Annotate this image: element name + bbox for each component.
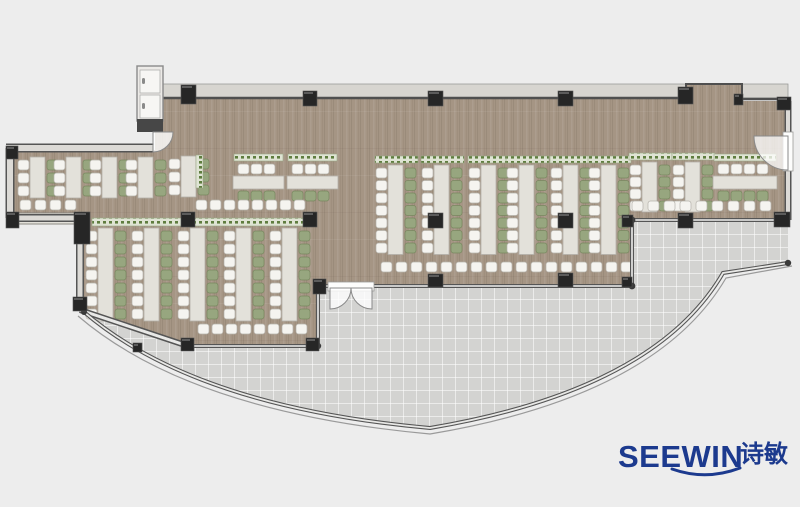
chair-green — [536, 168, 547, 178]
chair-white — [54, 173, 65, 183]
column-highlight — [182, 213, 191, 215]
column-highlight — [7, 147, 14, 149]
chair-green — [161, 283, 172, 293]
chair-white — [282, 324, 293, 334]
column-highlight — [623, 278, 628, 280]
chair-green — [451, 168, 462, 178]
chair-white — [469, 193, 480, 203]
chair-white — [212, 324, 223, 334]
chair-white — [54, 186, 65, 196]
chair-green — [618, 181, 629, 191]
chair-white — [589, 243, 600, 253]
chair-green — [299, 257, 310, 267]
chair-white — [132, 231, 143, 241]
chair-green — [207, 257, 218, 267]
chair-white — [376, 231, 387, 241]
chair-white — [728, 201, 739, 211]
chair-white — [305, 164, 316, 174]
chair-white — [178, 257, 189, 267]
desk-run — [421, 156, 464, 255]
chair-green — [618, 206, 629, 216]
planter-strip — [588, 156, 631, 163]
chair-white — [196, 200, 207, 210]
chair-white — [270, 231, 281, 241]
chair-white — [546, 262, 557, 272]
chair-white — [760, 201, 771, 211]
chair-white — [376, 243, 387, 253]
chair-white — [270, 309, 281, 319]
chair-green — [115, 231, 126, 241]
chair-white — [469, 206, 480, 216]
column-highlight — [559, 92, 569, 94]
seewin-logo: SEEWIN 诗敏 — [618, 441, 788, 481]
chair-white — [501, 262, 512, 272]
chair-white — [551, 243, 562, 253]
desk-strip — [481, 165, 496, 255]
chair-white — [50, 200, 61, 210]
chair-white — [576, 262, 587, 272]
chair-green — [292, 191, 303, 201]
chair-green — [253, 296, 264, 306]
chair-white — [224, 257, 235, 267]
chair-green — [618, 231, 629, 241]
chair-white — [86, 283, 97, 293]
chair-green — [253, 231, 264, 241]
chair-white — [132, 283, 143, 293]
column-highlight — [134, 344, 138, 346]
chair-green — [757, 191, 768, 201]
column-highlight — [314, 280, 322, 282]
chair-white — [469, 181, 480, 191]
chair-white — [18, 160, 29, 170]
chair-white — [469, 168, 480, 178]
chair-green — [659, 189, 670, 199]
chair-white — [673, 165, 684, 175]
chair-green — [536, 181, 547, 191]
column-highlight — [775, 213, 786, 215]
desk-strip — [388, 165, 403, 255]
structural-column — [74, 212, 90, 244]
chair-white — [507, 206, 518, 216]
chair-white — [126, 186, 137, 196]
chair-white — [606, 262, 617, 272]
desk-strip — [66, 157, 81, 198]
chair-white — [178, 231, 189, 241]
chair-white — [376, 218, 387, 228]
chair-row — [632, 201, 771, 211]
column-highlight — [429, 92, 439, 94]
chair-white — [65, 200, 76, 210]
planter-strip — [288, 154, 337, 161]
chair-white — [224, 270, 235, 280]
chair-white — [90, 173, 101, 183]
desk-strip — [30, 157, 45, 198]
chair-white — [376, 193, 387, 203]
chair-white — [469, 243, 480, 253]
logo-chinese-text: 诗敏 — [740, 443, 788, 467]
chair-white — [178, 296, 189, 306]
chair-green — [299, 244, 310, 254]
desk-run — [550, 156, 593, 255]
chair-white — [238, 200, 249, 210]
column-highlight — [735, 95, 739, 97]
chair-white — [680, 201, 691, 211]
chair-white — [35, 200, 46, 210]
chair-green — [253, 257, 264, 267]
chair-white — [226, 324, 237, 334]
chair-green — [451, 218, 462, 228]
chair-white — [507, 181, 518, 191]
chair-green — [207, 244, 218, 254]
chair-green — [451, 193, 462, 203]
chair-green — [405, 168, 416, 178]
chair-green — [702, 189, 713, 199]
chair-white — [224, 296, 235, 306]
chair-green — [299, 270, 310, 280]
chair-green — [744, 191, 755, 201]
desk-strip — [98, 228, 113, 321]
chair-green — [253, 283, 264, 293]
chair-white — [86, 270, 97, 280]
chair-green — [702, 177, 713, 187]
chair-white — [270, 257, 281, 267]
chair-green — [405, 181, 416, 191]
planter-strip — [375, 156, 418, 163]
chair-white — [294, 200, 305, 210]
chair-white — [664, 201, 675, 211]
chair-white — [507, 243, 518, 253]
chair-white — [254, 324, 265, 334]
chair-green — [536, 218, 547, 228]
column-highlight — [778, 98, 787, 100]
desk-strip — [138, 157, 153, 198]
planter-strip — [196, 155, 203, 188]
core-dark-band — [137, 119, 163, 132]
chair-white — [270, 283, 281, 293]
column-highlight — [429, 214, 439, 216]
chair-white — [471, 262, 482, 272]
chair-green — [155, 160, 166, 170]
chair-white — [744, 164, 755, 174]
chair-white — [757, 164, 768, 174]
chair-green — [155, 173, 166, 183]
service-core — [137, 66, 163, 132]
chair-green — [161, 257, 172, 267]
chair-white — [132, 244, 143, 254]
chair-green — [451, 243, 462, 253]
planter-strip — [234, 154, 283, 161]
chair-green — [115, 270, 126, 280]
chair-white — [422, 231, 433, 241]
chair-white — [238, 164, 249, 174]
chair-white — [531, 262, 542, 272]
chair-white — [169, 159, 180, 169]
chair-white — [318, 164, 329, 174]
chair-white — [376, 206, 387, 216]
chair-green — [618, 243, 629, 253]
chair-white — [132, 257, 143, 267]
chair-white — [126, 173, 137, 183]
chair-white — [132, 296, 143, 306]
desk-strip — [236, 228, 251, 321]
chair-green — [731, 191, 742, 201]
chair-white — [86, 244, 97, 254]
chair-white — [296, 324, 307, 334]
desk-strip — [233, 176, 284, 189]
chair-white — [132, 309, 143, 319]
column-highlight — [559, 274, 569, 276]
chair-white — [224, 309, 235, 319]
chair-white — [589, 181, 600, 191]
chair-white — [516, 262, 527, 272]
chair-green — [536, 231, 547, 241]
chair-white — [178, 244, 189, 254]
chair-green — [536, 206, 547, 216]
chair-white — [86, 257, 97, 267]
chair-green — [451, 181, 462, 191]
desk-run — [90, 157, 130, 198]
chair-green — [253, 244, 264, 254]
column-highlight — [304, 92, 313, 94]
chair-white — [696, 201, 707, 211]
chair-white — [648, 201, 659, 211]
chair-white — [178, 283, 189, 293]
chair-row — [381, 262, 632, 272]
chair-white — [551, 231, 562, 241]
chair-white — [90, 186, 101, 196]
chair-white — [86, 296, 97, 306]
desk-run — [126, 157, 166, 198]
chair-green — [536, 193, 547, 203]
chair-white — [169, 185, 180, 195]
chair-green — [115, 309, 126, 319]
column-highlight — [679, 214, 689, 216]
chair-green — [207, 270, 218, 280]
chair-white — [561, 262, 572, 272]
chair-green — [207, 231, 218, 241]
chair-green — [451, 206, 462, 216]
floor-plan-canvas — [0, 0, 800, 507]
chair-green — [207, 309, 218, 319]
chair-white — [591, 262, 602, 272]
chair-white — [673, 177, 684, 187]
chair-white — [224, 283, 235, 293]
chair-white — [18, 173, 29, 183]
planter-strip — [629, 153, 672, 160]
chair-white — [673, 189, 684, 199]
chair-white — [270, 296, 281, 306]
chair-white — [507, 168, 518, 178]
chair-white — [589, 193, 600, 203]
chair-green — [299, 296, 310, 306]
chair-white — [224, 200, 235, 210]
chair-green — [253, 270, 264, 280]
chair-green — [618, 168, 629, 178]
chair-green — [405, 206, 416, 216]
chair-white — [630, 189, 641, 199]
chair-green — [299, 231, 310, 241]
chair-white — [132, 270, 143, 280]
chair-green — [536, 243, 547, 253]
chair-green — [299, 283, 310, 293]
chair-white — [630, 165, 641, 175]
floor-plan-page: SEEWIN 诗敏 — [0, 0, 800, 507]
desk-strip — [563, 165, 578, 255]
chair-white — [266, 200, 277, 210]
chair-white — [198, 324, 209, 334]
chair-white — [280, 200, 291, 210]
chair-green — [299, 309, 310, 319]
chair-green — [305, 191, 316, 201]
chair-white — [20, 200, 31, 210]
chair-white — [54, 160, 65, 170]
chair-white — [589, 218, 600, 228]
chair-white — [712, 201, 723, 211]
logo-swoosh-icon — [670, 467, 742, 479]
desk-run — [468, 156, 511, 255]
chair-white — [507, 193, 518, 203]
chair-white — [252, 200, 263, 210]
desk-strip — [287, 176, 338, 189]
chair-white — [744, 201, 755, 211]
chair-green — [115, 244, 126, 254]
planter-strip — [92, 218, 308, 226]
desk-run — [375, 156, 418, 255]
chair-green — [238, 191, 249, 201]
desk-strip — [144, 228, 159, 321]
chair-white — [178, 270, 189, 280]
column-highlight — [182, 339, 190, 341]
column-highlight — [559, 214, 569, 216]
chair-white — [551, 181, 562, 191]
chair-white — [396, 262, 407, 272]
desk-strip — [601, 165, 616, 255]
chair-white — [456, 262, 467, 272]
column-highlight — [7, 213, 15, 215]
chair-green — [405, 231, 416, 241]
chair-green — [405, 193, 416, 203]
chair-white — [441, 262, 452, 272]
chair-white — [270, 244, 281, 254]
chair-white — [224, 231, 235, 241]
chair-green — [451, 231, 462, 241]
chair-white — [411, 262, 422, 272]
chair-white — [731, 164, 742, 174]
chair-green — [405, 243, 416, 253]
desk-strip — [102, 157, 117, 198]
chair-white — [426, 262, 437, 272]
planter-strip — [672, 153, 715, 160]
chair-white — [264, 164, 275, 174]
chair-white — [507, 231, 518, 241]
planter-strip — [506, 156, 549, 163]
chair-white — [551, 193, 562, 203]
floor-surfaces — [10, 84, 788, 428]
desk-strip — [519, 165, 534, 255]
desk-strip — [713, 176, 777, 189]
desk-run — [54, 157, 94, 198]
desk-run — [588, 156, 631, 255]
chair-green — [659, 165, 670, 175]
chair-green — [161, 231, 172, 241]
chair-green — [318, 191, 329, 201]
chair-white — [224, 244, 235, 254]
column-highlight — [429, 275, 439, 277]
chair-white — [507, 218, 518, 228]
chair-green — [718, 191, 729, 201]
chair-white — [422, 193, 433, 203]
chair-white — [469, 231, 480, 241]
chair-white — [422, 243, 433, 253]
chair-green — [207, 283, 218, 293]
chair-white — [632, 201, 643, 211]
chair-white — [589, 231, 600, 241]
chair-white — [589, 168, 600, 178]
chair-white — [469, 218, 480, 228]
desk-run — [506, 156, 549, 255]
chair-white — [376, 168, 387, 178]
chair-green — [251, 191, 262, 201]
chair-white — [381, 262, 392, 272]
chair-white — [589, 206, 600, 216]
chair-green — [161, 270, 172, 280]
column-highlight — [304, 213, 313, 215]
planter-strip — [550, 156, 593, 163]
chair-white — [270, 270, 281, 280]
chair-green — [155, 186, 166, 196]
chair-white — [422, 181, 433, 191]
chair-white — [292, 164, 303, 174]
planter-strip — [421, 156, 464, 163]
top-window-band-right — [742, 84, 788, 98]
chair-white — [126, 160, 137, 170]
desk-strip — [282, 228, 297, 321]
desk-strip — [181, 156, 196, 197]
chair-white — [210, 200, 221, 210]
desk-run — [18, 157, 58, 198]
chair-green — [659, 177, 670, 187]
chair-white — [718, 164, 729, 174]
chair-white — [486, 262, 497, 272]
chair-white — [240, 324, 251, 334]
chair-green — [405, 218, 416, 228]
chair-white — [18, 186, 29, 196]
chair-green — [161, 244, 172, 254]
desk-strip — [190, 228, 205, 321]
chair-green — [161, 296, 172, 306]
chair-green — [115, 296, 126, 306]
desk-strip — [434, 165, 449, 255]
chair-green — [207, 296, 218, 306]
chair-white — [630, 177, 641, 187]
chair-green — [253, 309, 264, 319]
column-highlight — [74, 298, 83, 300]
top-window-band — [150, 84, 686, 98]
chair-white — [90, 160, 101, 170]
column-highlight — [75, 213, 86, 215]
column-highlight — [182, 86, 192, 88]
column-highlight — [623, 216, 629, 218]
chair-green — [161, 309, 172, 319]
column-highlight — [307, 339, 315, 341]
chair-white — [268, 324, 279, 334]
chair-white — [376, 181, 387, 191]
chair-green — [115, 283, 126, 293]
chair-white — [178, 309, 189, 319]
chair-green — [115, 257, 126, 267]
chair-white — [551, 168, 562, 178]
chair-green — [618, 193, 629, 203]
